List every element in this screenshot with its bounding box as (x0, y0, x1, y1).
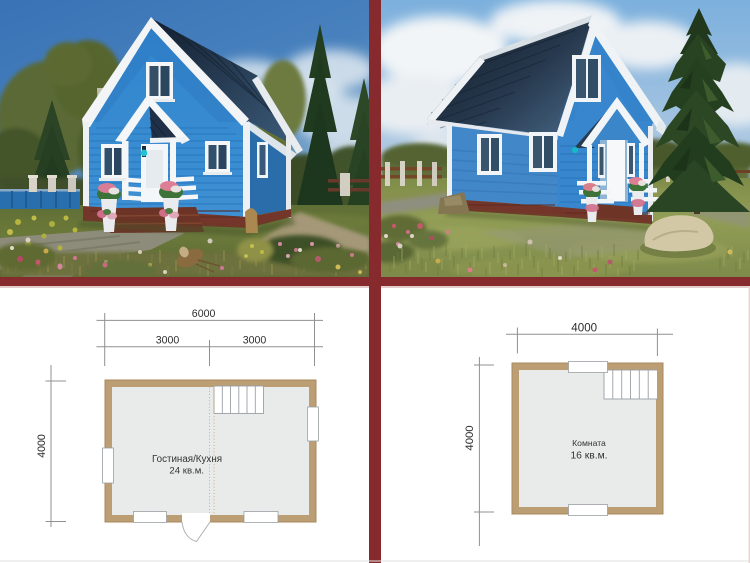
svg-text:4000: 4000 (36, 434, 48, 458)
svg-text:4000: 4000 (571, 322, 597, 335)
svg-text:Комната: Комната (572, 438, 606, 448)
svg-text:6000: 6000 (192, 308, 216, 320)
svg-text:Гостиная/Кухня: Гостиная/Кухня (152, 454, 222, 465)
svg-text:4000: 4000 (464, 425, 476, 450)
svg-text:3000: 3000 (156, 334, 180, 346)
svg-text:24 кв.м.: 24 кв.м. (169, 466, 204, 477)
svg-text:16 кв.м.: 16 кв.м. (570, 451, 607, 462)
svg-text:3000: 3000 (243, 334, 267, 346)
